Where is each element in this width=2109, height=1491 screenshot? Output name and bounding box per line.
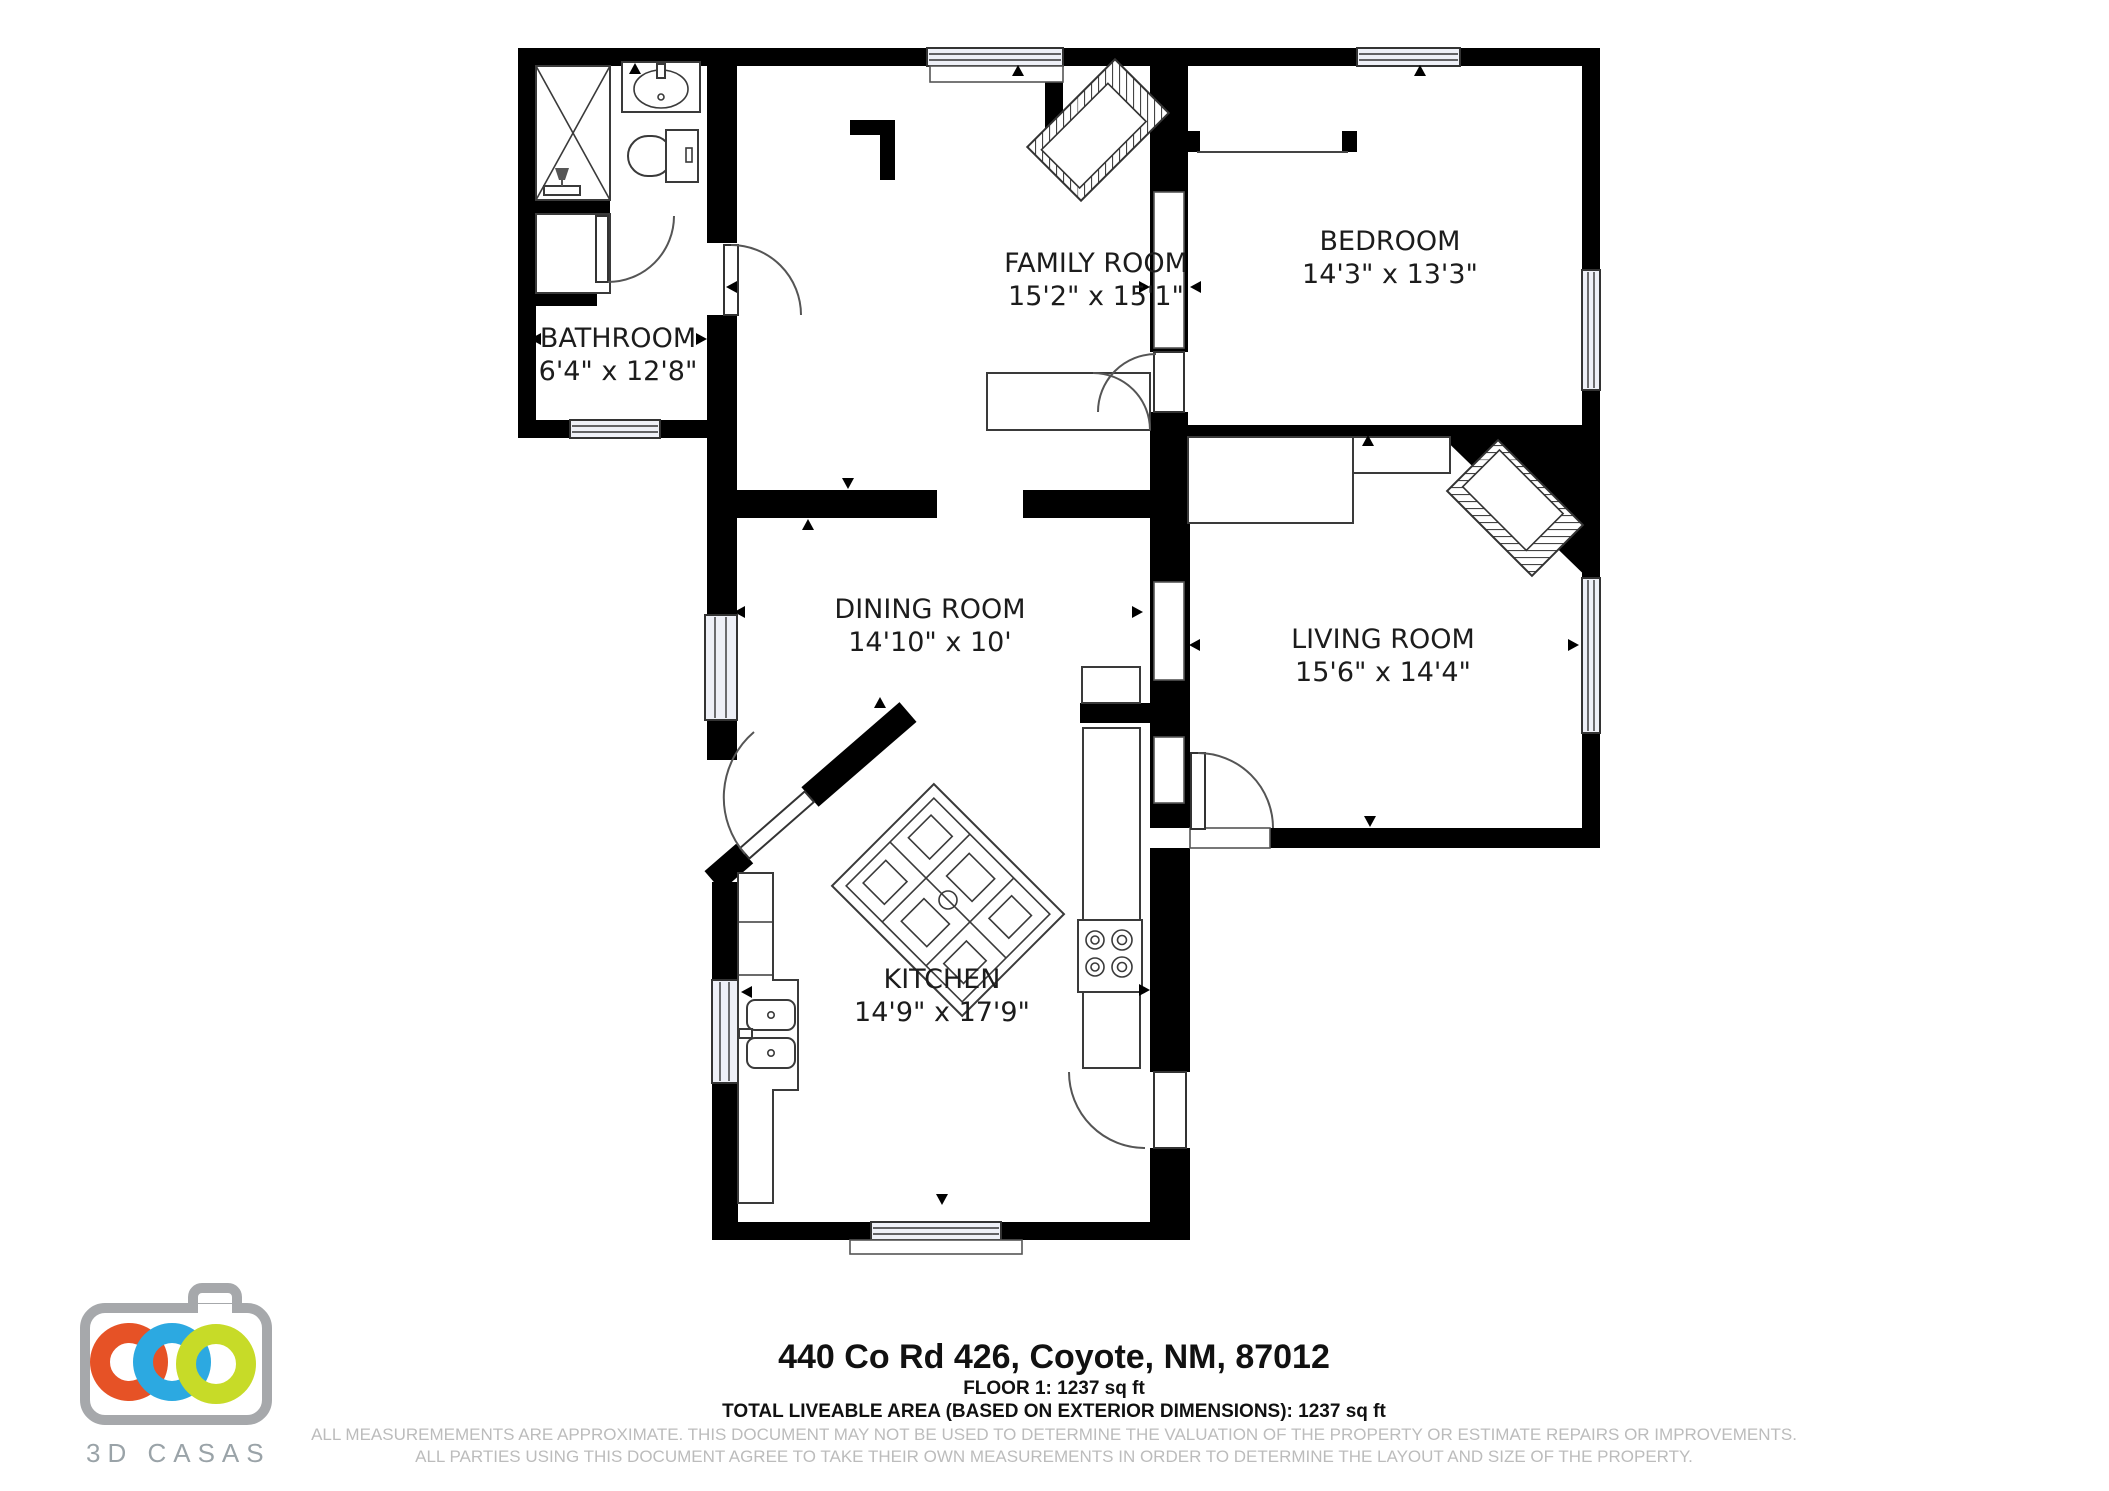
bath-closet-door-arc (608, 216, 674, 282)
camera-marker (1189, 639, 1200, 651)
wall-closet-stub-left (1185, 131, 1200, 152)
room-label-bedroom: BEDROOM (1320, 226, 1461, 257)
wall-west-lower (707, 720, 737, 760)
kitchen-dining-door-leaf (740, 791, 814, 858)
camera-seam (198, 1304, 232, 1316)
window-living-right (1582, 578, 1600, 733)
room-dims-living: 15'6" x 14'4" (1295, 657, 1471, 688)
camera-marker (874, 697, 886, 708)
camera-marker (1568, 639, 1579, 651)
entry-door-arc (1198, 753, 1273, 828)
room-dims-family: 15'2" x 15'1" (1008, 281, 1184, 312)
camera-marker (936, 1194, 948, 1205)
kitchen-back-door-leaf (1154, 1072, 1186, 1148)
kitchen-fixtures (738, 667, 1142, 1203)
floor-info-text: FLOOR 1: 1237 sq ft (963, 1378, 1145, 1399)
wall-kitchen-left-upper (712, 882, 738, 980)
disclaimer-line2: ALL PARTIES USING THIS DOCUMENT AGREE TO… (415, 1447, 1693, 1466)
pantry-niche-b (1154, 737, 1184, 803)
living-closet-a (1188, 437, 1353, 523)
window-bedroom-right (1582, 270, 1600, 390)
room-dims-dining: 14'10" x 10' (848, 627, 1011, 658)
stove-icon (1078, 920, 1142, 992)
camera-marker (1364, 816, 1376, 827)
window-dining (705, 615, 737, 720)
disclaimer-line1: ALL MEASUREMEMENTS ARE APPROXIMATE. THIS… (311, 1425, 1797, 1444)
wall-closet-stub-right (1342, 131, 1357, 152)
wall-family-bottom-left (707, 490, 937, 518)
camera-marker (696, 333, 707, 345)
kitchen-counter-right (1083, 728, 1140, 923)
footer: 440 Co Rd 426, Coyote, NM, 87012 FLOOR 1… (311, 1338, 1797, 1466)
camera-marker (842, 478, 854, 489)
bathroom-door-leaf (724, 245, 738, 315)
entry-door-threshold (1190, 828, 1270, 848)
kitchen-back-door-arc (1069, 1072, 1145, 1148)
bath-closet-door-leaf (596, 216, 608, 282)
wall-l-stub-b (880, 135, 895, 180)
toilet-icon (628, 130, 698, 182)
wall-kitchen-left-lower (712, 1083, 738, 1240)
wall-bedroom-left-lower (1150, 412, 1188, 500)
entry-door-leaf (1191, 753, 1205, 829)
wall-shower-stub (518, 200, 610, 214)
address-text: 440 Co Rd 426, Coyote, NM, 87012 (778, 1338, 1330, 1376)
total-area-text: TOTAL LIVEABLE AREA (BASED ON EXTERIOR D… (722, 1401, 1386, 1422)
window-bedroom-top (1357, 48, 1460, 66)
wall-east-mid (1150, 848, 1190, 1072)
window-sill (850, 1240, 1022, 1254)
kitchen-counter-lower (1083, 992, 1140, 1068)
wall-west-upper (707, 62, 737, 243)
window-sill (930, 66, 1063, 82)
bedroom-door-leaf (1154, 352, 1184, 412)
bathroom-door-arc (731, 245, 801, 315)
window-kitchen-bottom (850, 1222, 1022, 1254)
logo-brand-text: 3D CASAS (86, 1438, 271, 1468)
room-dims-bathroom: 6'4" x 12'8" (539, 356, 698, 387)
room-label-living: LIVING ROOM (1291, 624, 1475, 655)
kitchen-dining-door (740, 791, 814, 858)
wall-dining-stub (1080, 703, 1164, 723)
floor-plan-svg: FAMILY ROOM 15'2" x 15'1" BEDROOM 14'3" … (0, 0, 2109, 1491)
wall-kitchen-bottom-right (1001, 1222, 1190, 1240)
room-dims-bedroom: 14'3" x 13'3" (1302, 259, 1478, 290)
room-label-kitchen: KITCHEN (884, 964, 1001, 995)
hall-closet (987, 373, 1150, 430)
room-label-dining: DINING ROOM (834, 594, 1025, 625)
window-family-top (927, 48, 1063, 82)
wall-west-mid (707, 315, 737, 615)
shower-icon (536, 66, 610, 200)
logo-3dcasas: 3D CASAS (85, 1288, 271, 1468)
floor-plan-page: FAMILY ROOM 15'2" x 15'1" BEDROOM 14'3" … (0, 0, 2109, 1491)
camera-marker (1139, 984, 1150, 996)
wall-l-stub-a (850, 120, 895, 135)
room-label-family: FAMILY ROOM (1004, 248, 1188, 279)
kitchen-cabinet-upper (1082, 667, 1140, 703)
wall-bath-left (518, 48, 536, 438)
camera-marker (1132, 606, 1143, 618)
pantry-niche-a (1154, 582, 1184, 680)
room-label-bathroom: BATHROOM (540, 323, 696, 354)
camera-marker (1190, 281, 1201, 293)
bathroom-fixtures (536, 62, 700, 200)
wall-right-1 (1582, 48, 1600, 270)
window-kitchen-left (712, 980, 738, 1083)
wall-living-bottom (1268, 828, 1600, 848)
camera-marker (802, 519, 814, 530)
window-bathroom (570, 420, 660, 438)
room-dims-kitchen: 14'9" x 17'9" (854, 997, 1030, 1028)
